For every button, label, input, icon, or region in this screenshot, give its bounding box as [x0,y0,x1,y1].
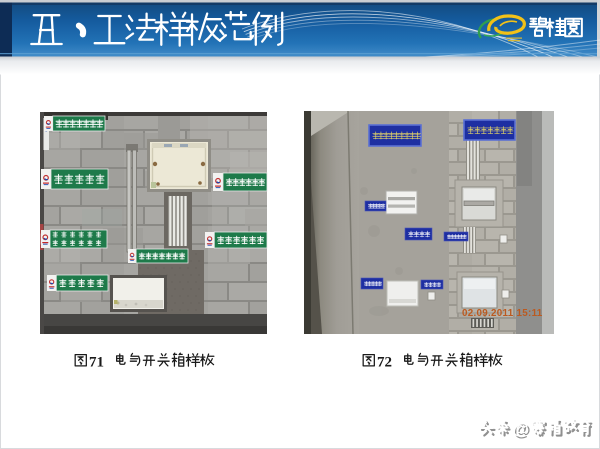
svg-text:02.09.2011 15:11: 02.09.2011 15:11 [462,308,543,319]
svg-text:@: @ [512,419,529,438]
svg-text:71: 71 [89,355,104,371]
svg-text:72: 72 [377,355,392,371]
